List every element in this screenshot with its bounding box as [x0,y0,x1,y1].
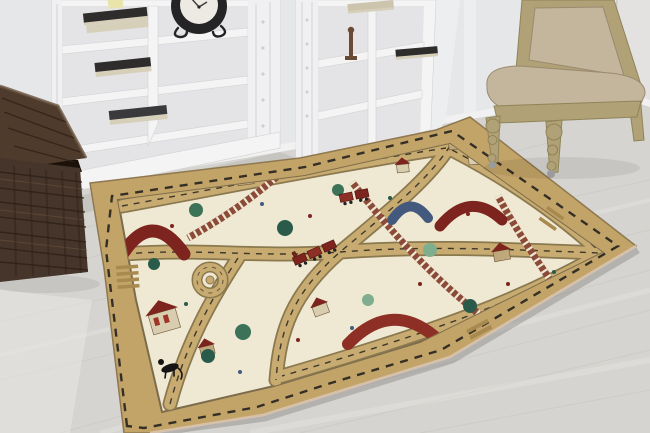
caster-wheel [489,162,496,169]
shelf-divider [368,4,376,158]
room-scene [0,0,650,433]
candle [107,0,123,9]
molding-pilaster [248,0,280,156]
caster-wheel [547,170,555,178]
molding-pilaster [296,0,318,176]
room-photo [0,0,650,433]
roundabout [197,267,223,293]
shelf-divider [148,6,158,146]
wall-trim [464,0,476,114]
